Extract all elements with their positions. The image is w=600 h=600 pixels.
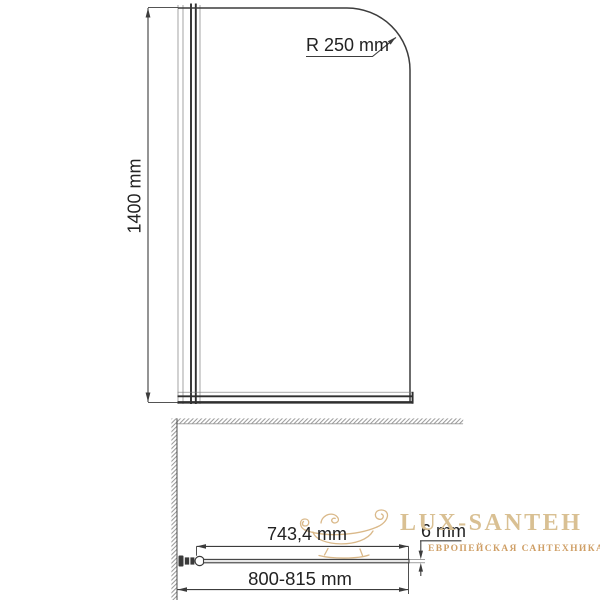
wall-hatch-top [176,418,463,423]
wall-profile [178,4,200,405]
glass-panel-plan [204,559,410,562]
bottom-rail [178,392,414,404]
watermark-brand: LUX-SANTEH [400,510,582,537]
panel-outline [178,8,410,404]
glass-width-label: 743,4 mm [267,525,347,544]
hinge-icon [179,556,205,567]
glass-width-dimension [197,544,409,559]
technical-drawing-canvas: R 250 mm 1400 mm 743,4 mm 6 mm 800-815 m… [0,0,600,600]
width-range-label: 800-815 mm [248,569,352,588]
wall-hatch-left [171,418,177,600]
radius-label: R 250 mm [306,36,389,55]
front-view [146,4,413,405]
height-label: 1400 mm [126,158,145,233]
watermark-tagline: ЕВРОПЕЙСКАЯ САНТЕХНИКА [428,544,600,554]
height-dimension [146,8,178,403]
